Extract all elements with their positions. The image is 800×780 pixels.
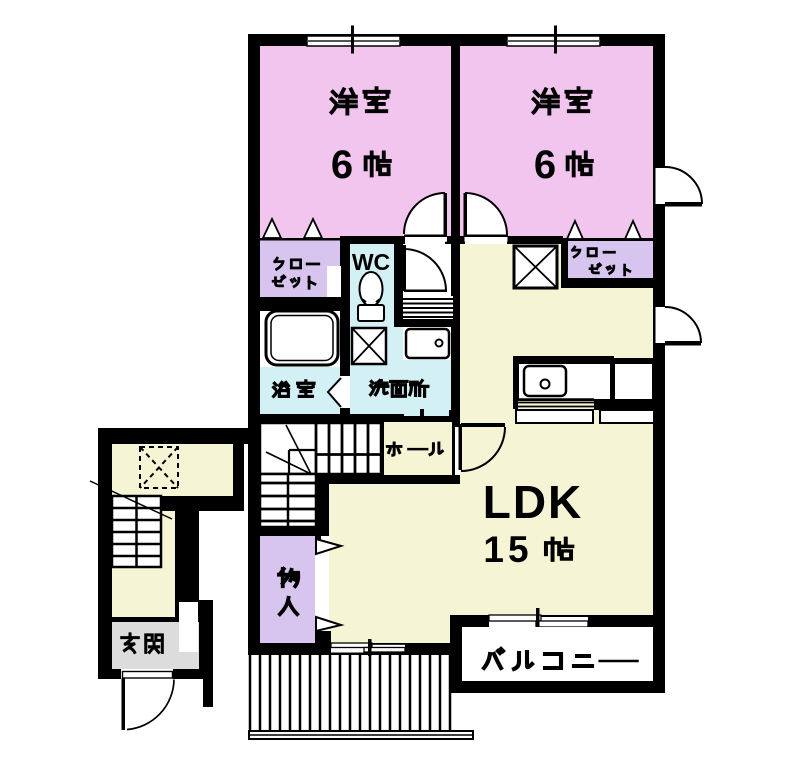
svg-text:6: 6 [534,143,556,187]
svg-text:6: 6 [331,143,353,187]
svg-text:WC: WC [352,249,390,275]
svg-text:15: 15 [483,529,532,570]
svg-text:LDK: LDK [483,476,584,528]
